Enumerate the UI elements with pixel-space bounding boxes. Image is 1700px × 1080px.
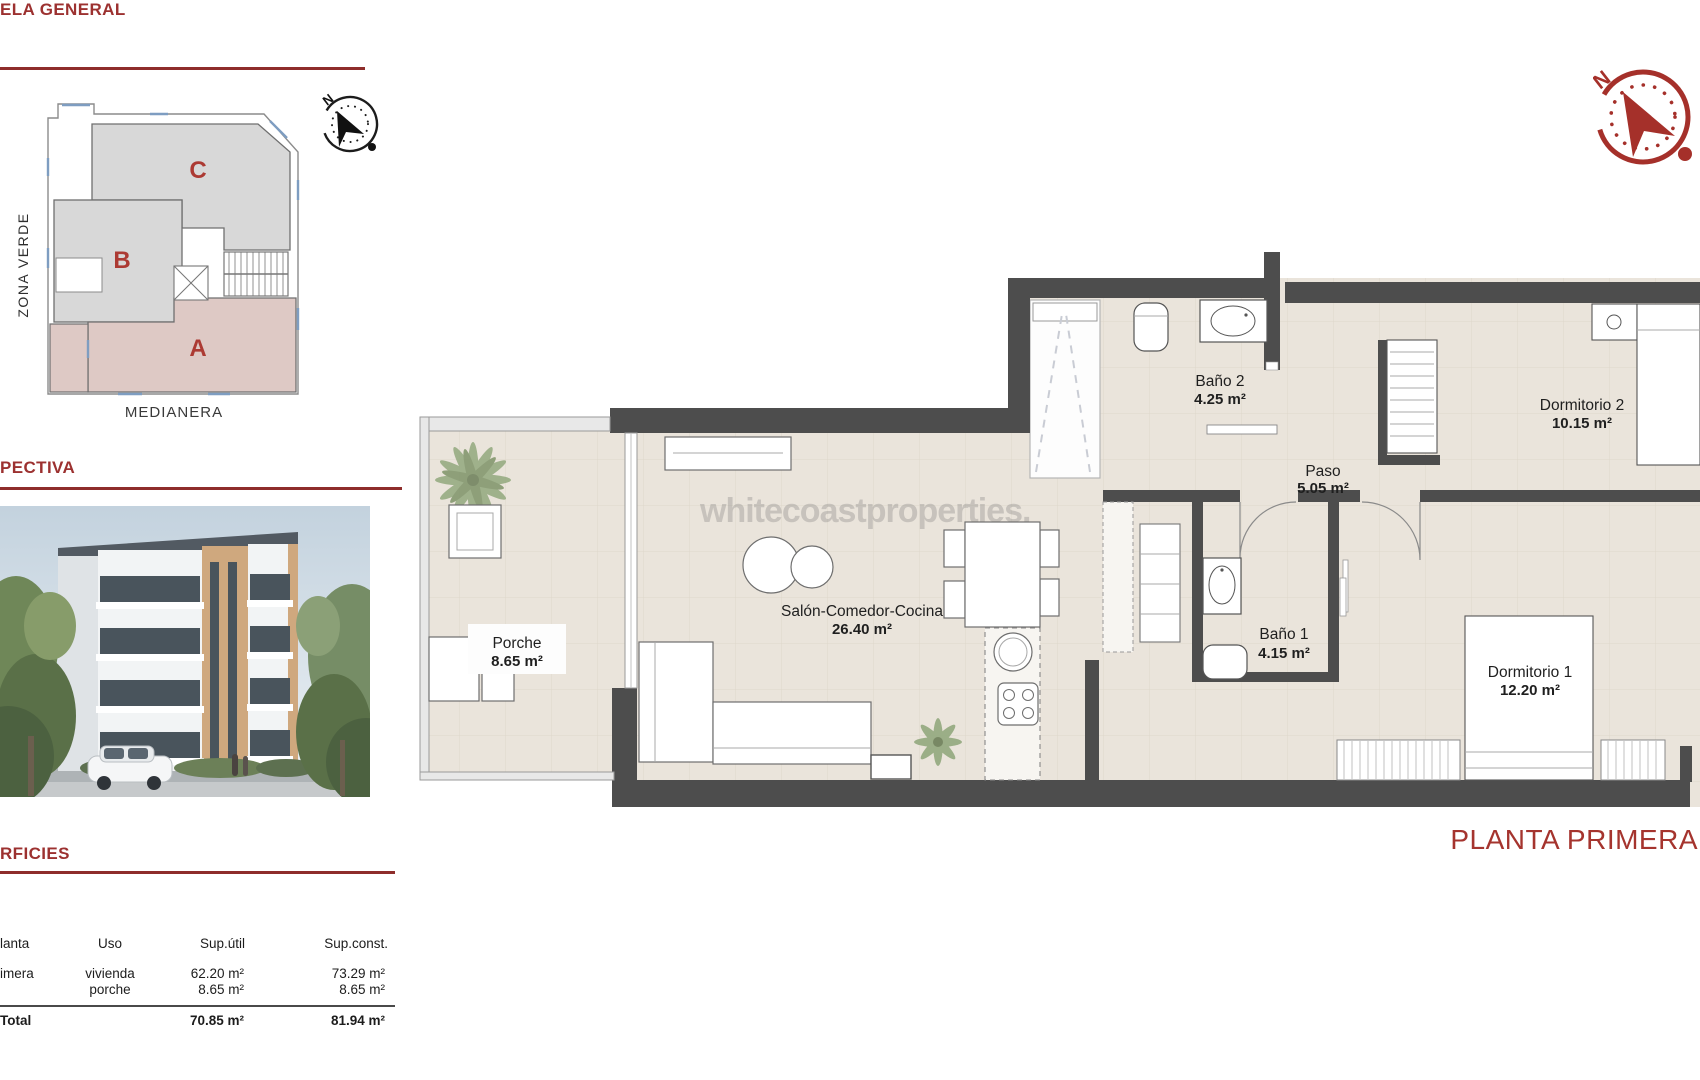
washbasin xyxy=(1200,300,1267,342)
svg-text:Porche: Porche xyxy=(492,635,541,652)
section-title-parcela: ELA GENERAL xyxy=(0,0,126,20)
svg-text:12.20 m²: 12.20 m² xyxy=(1500,682,1560,699)
section-title-superficies: RFICIES xyxy=(0,844,70,864)
row-sup-util: 62.20 m² xyxy=(144,966,244,981)
svg-text:Dormitorio 1: Dormitorio 1 xyxy=(1488,664,1572,681)
table-divider xyxy=(0,1005,395,1007)
elevator-symbol xyxy=(174,266,208,300)
svg-text:4.25 m²: 4.25 m² xyxy=(1194,391,1246,408)
window-sill xyxy=(1266,362,1278,370)
svg-text:Baño 2: Baño 2 xyxy=(1195,373,1244,390)
person xyxy=(243,756,248,776)
compass-n-label: N xyxy=(1593,66,1615,93)
porch-table xyxy=(449,505,501,558)
col-header-sup-util: Sup.útil xyxy=(145,936,245,951)
site-plan: C B A ZONA VERDE N xyxy=(0,86,380,401)
row-planta: imera xyxy=(0,966,34,981)
svg-text:Dormitorio 2: Dormitorio 2 xyxy=(1540,397,1624,414)
persiana-window xyxy=(1337,740,1460,780)
compass-icon: N xyxy=(1593,64,1697,170)
svg-text:10.15 m²: 10.15 m² xyxy=(1552,415,1612,432)
plan-title: PLANTA PRIMERA xyxy=(1450,824,1698,856)
nightstand xyxy=(1592,304,1637,340)
low-window xyxy=(871,755,911,779)
svg-text:5.05 m²: 5.05 m² xyxy=(1297,480,1349,497)
room-label-porche: Porche 8.65 m² xyxy=(468,624,566,674)
rule-parcela xyxy=(0,67,365,70)
floor-plan: whitecoastproperties. xyxy=(390,250,1700,810)
block-a-strip xyxy=(50,324,88,392)
person xyxy=(232,754,238,776)
total-sup-const: 81.94 m² xyxy=(285,1013,385,1028)
block-c-label: C xyxy=(189,157,206,184)
row-sup-const: 8.65 m² xyxy=(285,982,385,997)
room-label-dormitorio2: Dormitorio 2 10.15 m² xyxy=(1540,397,1624,432)
rule-superficies xyxy=(0,871,395,874)
row-sup-const: 73.29 m² xyxy=(285,966,385,981)
hall-shelf xyxy=(1207,425,1277,434)
round-table xyxy=(791,546,833,588)
room-label-dormitorio1: Dormitorio 1 12.20 m² xyxy=(1488,664,1572,699)
total-sup-util: 70.85 m² xyxy=(144,1013,244,1028)
zona-verde-label: ZONA VERDE xyxy=(15,212,31,317)
total-label: Total xyxy=(0,1013,31,1028)
toilet xyxy=(1203,645,1247,679)
bed xyxy=(1637,304,1700,465)
brochure-page: ELA GENERAL xyxy=(0,0,1700,1080)
svg-text:Baño 1: Baño 1 xyxy=(1259,626,1308,643)
block-b-label: B xyxy=(113,247,130,274)
perspective-render xyxy=(0,506,370,797)
col-header-sup-const: Sup.const. xyxy=(288,936,388,951)
compass-icon-small: N xyxy=(313,87,380,161)
floor-plant xyxy=(914,718,962,766)
svg-text:8.65 m²: 8.65 m² xyxy=(491,653,543,670)
wardrobe xyxy=(1387,340,1437,453)
sideboard xyxy=(665,437,791,470)
kitchen-counter xyxy=(985,628,1040,780)
stairs-symbol xyxy=(224,252,288,296)
glass-door xyxy=(625,433,637,688)
svg-text:4.15 m²: 4.15 m² xyxy=(1258,645,1310,662)
persiana-window xyxy=(1601,740,1665,780)
toilet xyxy=(1134,303,1168,351)
building xyxy=(58,532,316,778)
lightwell xyxy=(1030,300,1100,478)
kitchen-tall-units xyxy=(1103,502,1180,652)
col-header-planta: lanta xyxy=(0,936,29,951)
compass-n-small: N xyxy=(320,91,337,109)
medianera-label: MEDIANERA xyxy=(94,404,254,421)
block-a-label: A xyxy=(189,335,206,362)
row-sup-util: 8.65 m² xyxy=(144,982,244,997)
washbasin xyxy=(1203,558,1241,614)
svg-text:Paso: Paso xyxy=(1305,463,1340,480)
svg-text:26.40 m²: 26.40 m² xyxy=(832,621,892,638)
radiator xyxy=(1340,578,1346,616)
room-label-bano2: Baño 2 4.25 m² xyxy=(1194,373,1246,408)
svg-text:Salón-Comedor-Cocina: Salón-Comedor-Cocina xyxy=(781,603,943,620)
section-title-perspectiva: PECTIVA xyxy=(0,458,75,478)
block-b-terrace xyxy=(56,258,102,292)
rule-perspectiva xyxy=(0,487,402,490)
